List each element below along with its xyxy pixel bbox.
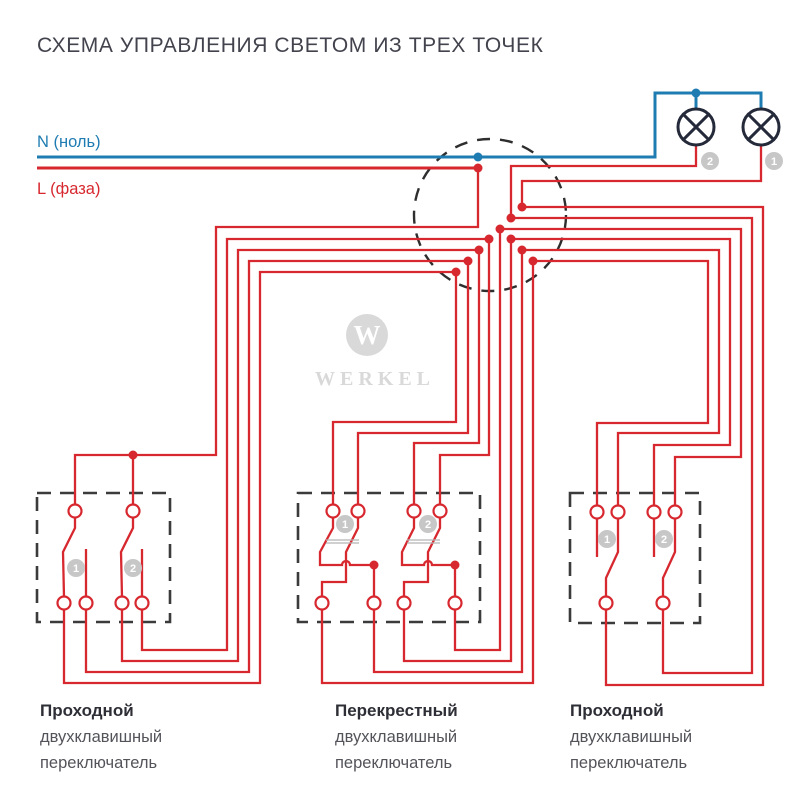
switch-label-left-line2: двухклавишный: [40, 728, 162, 746]
number-badge-label: 1: [73, 563, 79, 575]
switch-label-right-line3: переключатель: [570, 754, 687, 772]
junction-dot: [451, 561, 460, 570]
schematic-canvas: W WERKEL 21121212 СХЕМА УПРАВЛЕНИЯ СВЕТО…: [0, 0, 800, 800]
terminal: [648, 506, 661, 519]
switch-label-right-title: Проходной: [570, 701, 664, 720]
wire: [522, 145, 761, 207]
number-badge-label: 1: [342, 519, 348, 531]
junction-dot: [518, 246, 527, 255]
switch-label-left-line3: переключатель: [40, 754, 157, 772]
junction-dot: [370, 561, 379, 570]
wiring-diagram-page: W WERKEL 21121212 СХЕМА УПРАВЛЕНИЯ СВЕТО…: [0, 0, 800, 800]
terminal: [434, 505, 447, 518]
number-badge-label: 2: [661, 534, 667, 546]
terminal: [58, 597, 71, 610]
junction-dot: [474, 153, 483, 162]
junction-dot: [129, 451, 138, 460]
switch-label-middle-title: Перекрестный: [335, 701, 458, 720]
brand-name: WERKEL: [315, 368, 435, 390]
neutral-wire: [37, 93, 761, 157]
terminal: [127, 505, 140, 518]
junction-dot: [464, 257, 473, 266]
terminal: [669, 506, 682, 519]
switch-label-right: Проходной двухклавишный переключатель: [570, 701, 692, 772]
junction-dot: [518, 203, 527, 212]
wire: [63, 517, 75, 597]
terminal: [600, 597, 613, 610]
number-badge-label: 1: [771, 156, 777, 168]
terminal: [591, 506, 604, 519]
switch-label-middle-line2: двухклавишный: [335, 728, 457, 746]
terminal: [352, 505, 365, 518]
terminal: [116, 597, 129, 610]
page-title: СХЕМА УПРАВЛЕНИЯ СВЕТОМ ИЗ ТРЕХ ТОЧЕК: [37, 34, 544, 57]
terminal: [398, 597, 411, 610]
neutral-label: N (ноль): [37, 133, 101, 151]
terminal: [612, 506, 625, 519]
terminal: [80, 597, 93, 610]
junction-dot: [507, 235, 516, 244]
number-badge-label: 2: [425, 519, 431, 531]
junction-dot: [496, 225, 505, 234]
wire: [606, 518, 618, 597]
switch-label-middle: Перекрестный двухклавишный переключатель: [335, 701, 458, 772]
junction-dot: [507, 214, 516, 223]
terminal: [136, 597, 149, 610]
number-badge-label: 1: [604, 534, 610, 546]
junction-dot: [475, 246, 484, 255]
junction-dot: [474, 164, 483, 173]
wire: [663, 518, 675, 597]
junction-dot: [692, 89, 701, 98]
terminal: [316, 597, 329, 610]
brand-watermark: W WERKEL: [315, 314, 435, 390]
terminal: [408, 505, 421, 518]
junction-dot: [485, 235, 494, 244]
junction-dot: [452, 268, 461, 277]
switch-label-right-line2: двухклавишный: [570, 728, 692, 746]
wire: [142, 239, 489, 650]
switch-label-left-title: Проходной: [40, 701, 134, 720]
terminal: [69, 505, 82, 518]
number-badge-label: 2: [130, 563, 136, 575]
brand-monogram: W: [354, 320, 381, 350]
terminal: [327, 505, 340, 518]
terminal: [368, 597, 381, 610]
terminal: [657, 597, 670, 610]
switch-label-middle-line3: переключатель: [335, 754, 452, 772]
switch-label-left: Проходной двухклавишный переключатель: [40, 701, 162, 772]
phase-label: L (фаза): [37, 180, 100, 198]
terminal: [449, 597, 462, 610]
wire: [121, 517, 133, 597]
number-badge-label: 2: [707, 156, 713, 168]
junction-dot: [529, 257, 538, 266]
